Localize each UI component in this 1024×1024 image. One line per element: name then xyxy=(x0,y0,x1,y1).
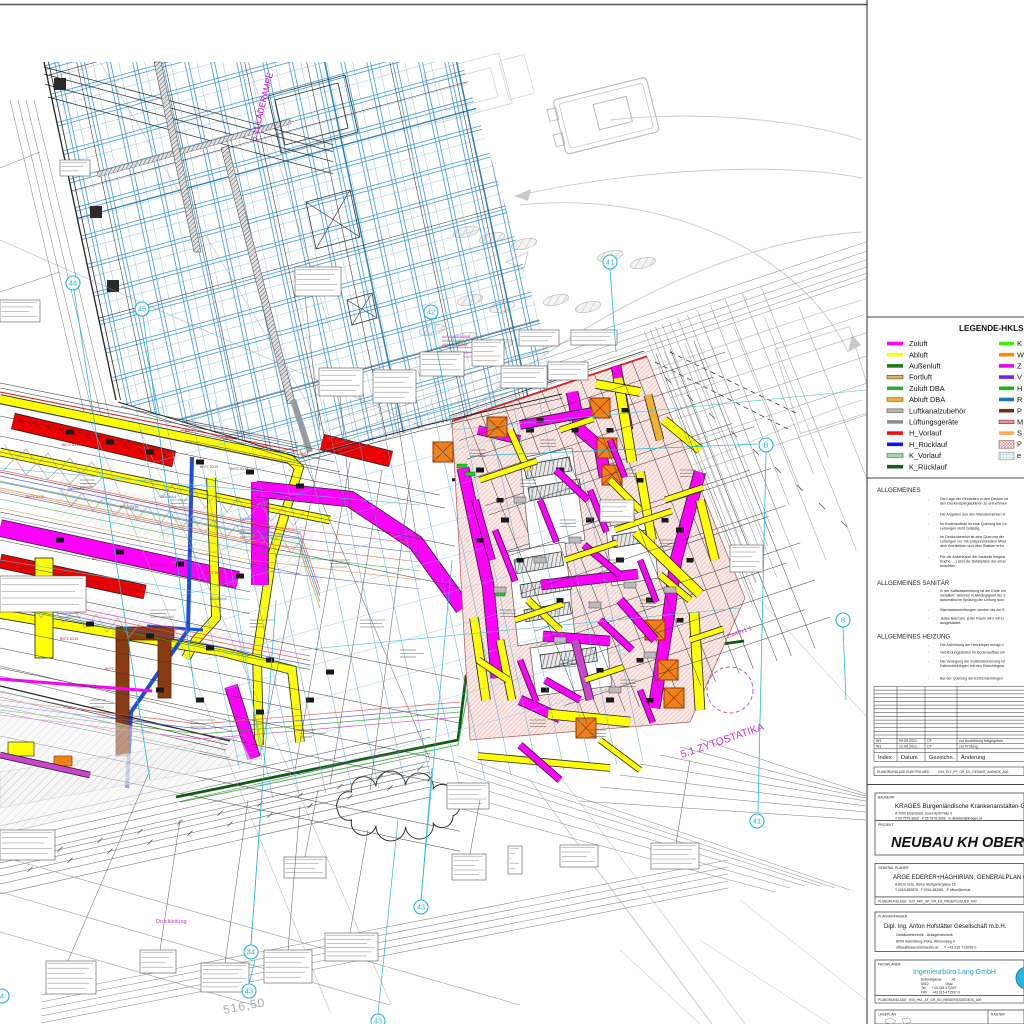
svg-text:Luftkanalzubehör: Luftkanalzubehör xyxy=(909,406,966,415)
svg-text:zur Prüfung: zur Prüfung xyxy=(959,745,978,749)
svg-text:BKFZ 20/15: BKFZ 20/15 xyxy=(62,443,80,447)
svg-text:Im Deckenbereich ist eine Quer: Im Deckenbereich ist eine Querung der xyxy=(940,535,1005,539)
svg-text:41: 41 xyxy=(753,817,761,826)
svg-text:PLANGRUNDLAGE K20_ARC_AP_GR_: PLANGRUNDLAGE K20_ARC_AP_GR_EG_FREIEPLGG… xyxy=(878,899,977,903)
svg-text:beachten.: beachten. xyxy=(940,564,956,568)
svg-text:ALLGEMEINES: ALLGEMEINES xyxy=(877,487,921,494)
svg-text:41: 41 xyxy=(606,258,614,267)
svg-text:K_Vorlauf: K_Vorlauf xyxy=(909,451,942,460)
svg-text:43: 43 xyxy=(245,987,253,996)
svg-text:H_Vorlauf: H_Vorlauf xyxy=(909,429,942,438)
svg-text:Verbindungsstellen im Bodenauf: Verbindungsstellen im Bodenaufbau sin xyxy=(940,651,1005,655)
svg-text:P: P xyxy=(1017,406,1022,415)
svg-text:Zuluft: Zuluft xyxy=(909,339,927,348)
svg-text:H_Rücklauf: H_Rücklauf xyxy=(909,440,948,449)
svg-text:AAAAAAAAAAAA: AAAAAAAAAAAA xyxy=(442,343,468,347)
svg-text:Da108x3,6: Da108x3,6 xyxy=(210,597,227,601)
svg-text:H: H xyxy=(1017,384,1022,393)
svg-text:43: 43 xyxy=(417,903,425,912)
svg-text:GENERAL PLANER: GENERAL PLANER xyxy=(878,866,909,870)
svg-text:BKFZ: BKFZ xyxy=(262,445,270,449)
svg-text:BKFZ: BKFZ xyxy=(185,429,193,433)
svg-text:dem Architekten und dem Statik: dem Architekten und dem Statiker erfor xyxy=(940,544,1005,548)
svg-text:Ingenieurbüro Lang GmbH: Ingenieurbüro Lang GmbH xyxy=(913,969,996,976)
svg-text:BKFZ 20/15: BKFZ 20/15 xyxy=(205,571,223,575)
svg-text:ARGE EDERER+HAGHIRIAN, GENERAL: ARGE EDERER+HAGHIRIAN, GENERALPLAN GMBH xyxy=(893,875,1024,881)
svg-text:Abluft DBA: Abluft DBA xyxy=(909,395,945,404)
svg-text:A-8010 Graz, Reine Stuttgarter: A-8010 Graz, Reine Stuttgartergasse 18 xyxy=(895,883,956,887)
svg-text:installiert, welches in Abhäng: installiert, welches in Abhängigkeit der… xyxy=(940,594,1006,598)
svg-text:43: 43 xyxy=(374,1017,382,1024)
svg-text:zur Ausführung freigegeben: zur Ausführung freigegeben xyxy=(959,739,1003,743)
svg-text:09.09.2021: 09.09.2021 xyxy=(899,739,917,743)
svg-text:ausgestattet.: ausgestattet. xyxy=(940,621,961,625)
svg-text:CF: CF xyxy=(927,745,933,749)
svg-text:Abluft: Abluft xyxy=(909,350,928,359)
svg-text:W: W xyxy=(1017,350,1024,359)
svg-text:Index: Index xyxy=(878,755,892,761)
svg-text:V: V xyxy=(1017,373,1022,382)
svg-text:Datum: Datum xyxy=(901,755,918,761)
svg-text:Warmwasserleitungen werden bis: Warmwasserleitungen werden bis zur E xyxy=(940,608,1005,612)
svg-text:BKFZ: BKFZ xyxy=(225,437,233,441)
svg-text:B: B xyxy=(763,441,768,450)
svg-text:Z: Z xyxy=(1017,362,1022,371)
svg-text:In der Kaltwasserleitung ist a: In der Kaltwasserleitung ist am Ende ein xyxy=(940,589,1006,593)
svg-text:12.08.2021: 12.08.2021 xyxy=(899,745,917,749)
svg-text:Gebäudetechnik - Anlagentechni: Gebäudetechnik - Anlagentechnik xyxy=(896,933,953,937)
svg-text:Leitungen nur mit entsprechend: Leitungen nur mit entsprechendem Mind xyxy=(940,540,1006,544)
svg-text:BKFZ 20/15: BKFZ 20/15 xyxy=(230,467,248,471)
svg-text:8: 8 xyxy=(841,616,845,625)
svg-text:PLANVERFASSER: PLANVERFASSER xyxy=(878,915,908,919)
svg-text:Bei der Querung der Estrichdeh: Bei der Querung der Estrichdehnfugen xyxy=(940,677,1003,681)
svg-text:44: 44 xyxy=(247,948,255,957)
svg-text:45: 45 xyxy=(138,305,146,314)
svg-text:CF: CF xyxy=(927,739,933,743)
svg-text:PLANGRUNDLAGE ELEKTRO-MED: PLANGRUNDLAGE ELEKTRO-MED xyxy=(877,770,930,774)
svg-text:BKFZ 20/15: BKFZ 20/15 xyxy=(92,557,110,561)
svg-text:Dipl. Ing. Anton Hofstätter Ge: Dipl. Ing. Anton Hofstätter Gesellschaft… xyxy=(884,924,1007,930)
svg-text:T 05 7979-3000 F 05 7979-300: T 05 7979-3000 F 05 7979-3006 E direktio… xyxy=(895,816,982,820)
svg-text:Die Lage der Einbauten in den: Die Lage der Einbauten in den Decken ist xyxy=(940,497,1008,501)
svg-text:Änderung: Änderung xyxy=(961,754,985,761)
svg-text:automatische Spülung der Leitu: automatische Spülung der Leitung durc xyxy=(940,598,1004,602)
svg-text:e: e xyxy=(1017,451,1021,460)
svg-text:K_Rücklauf: K_Rücklauf xyxy=(909,462,948,471)
svg-text:RASTER: RASTER xyxy=(991,1013,1005,1017)
svg-text:S: S xyxy=(1017,429,1022,438)
svg-text:T 0316-682576 F 0316-682951: T 0316-682576 F 0316-682951 E office@wm.… xyxy=(895,888,970,892)
svg-text:XXX_ELT_FP_GR_EG_GESAMT_A00WGK: XXX_ELT_FP_GR_EG_GESAMT_A00WGK_A00 xyxy=(938,770,1008,774)
svg-text:Fortluft: Fortluft xyxy=(909,373,932,382)
svg-text:Gezeichn.: Gezeichn. xyxy=(929,755,955,761)
svg-text:Die Anbindung der Heizkörper e: Die Anbindung der Heizkörper erfolgt ü xyxy=(940,643,1004,647)
svg-text:Küche, ...) sind die Detailplä: Küche, ...) sind die Detailpläne der ein… xyxy=(940,560,1006,564)
svg-text:Für die Anschlüsse der bauseit: Für die Anschlüsse der bauseits beigest xyxy=(940,555,1005,559)
svg-text:Die Verlegung der Fußbodenheiz: Die Verlegung der Fußbodenheizung ist xyxy=(940,660,1005,664)
svg-text:LEGENDE-HKLS: LEGENDE-HKLS xyxy=(959,324,1024,333)
svg-text:Druckleitung: Druckleitung xyxy=(156,919,187,925)
svg-text:44: 44 xyxy=(69,279,77,288)
svg-text:ALLGEMEINES SANITÄR: ALLGEMEINES SANITÄR xyxy=(877,580,950,587)
svg-text:42: 42 xyxy=(427,308,435,317)
svg-text:Estrichdehnfugen mit den Estri: Estrichdehnfugen mit den Estrichlegear xyxy=(940,664,1005,668)
svg-text:PROJEKT: PROJEKT xyxy=(878,823,894,827)
svg-text:Die Angaben aus den Wandansich: Die Angaben aus den Wandansichten si xyxy=(940,513,1005,517)
svg-text:PLANGRUNDLAGE K05_HKL_AF_GR_: PLANGRUNDLAGE K05_HKL_AF_GR_EG_RINGERISS… xyxy=(878,998,982,1002)
svg-text:den Deckenspiegelplänen zu ent: den Deckenspiegelplänen zu entnehmen xyxy=(940,502,1007,506)
svg-text:BKFZ 20/15: BKFZ 20/15 xyxy=(150,563,168,567)
svg-text:NEUBAU KH OBERWART: NEUBAU KH OBERWART xyxy=(891,835,1024,851)
svg-text:4: 4 xyxy=(0,992,4,1001)
svg-text:Leitungen nicht zulässig.: Leitungen nicht zulässig. xyxy=(940,527,980,531)
svg-text:R: R xyxy=(1017,395,1022,404)
svg-text:A-7000 Eisenstadt, Josef Hyrtl: A-7000 Eisenstadt, Josef Hyrtl Platz 4 xyxy=(895,812,952,816)
svg-text:LAGEPLAN: LAGEPLAN xyxy=(878,1013,896,1017)
svg-text:M: M xyxy=(1017,418,1023,427)
svg-text:office@haus-hofstaetter.at: office@haus-hofstaetter.at T +43 316 713… xyxy=(896,946,976,950)
svg-text:P: P xyxy=(1017,439,1022,448)
svg-text:Lüftungsgeräte: Lüftungsgeräte xyxy=(909,418,958,427)
svg-text:Im Bodenaufbau ist eine Querun: Im Bodenaufbau ist eine Querung der Le xyxy=(940,522,1007,526)
svg-text:Zuluft DBA: Zuluft DBA xyxy=(909,384,945,393)
svg-text:KRAGES Burgenländische Kranken: KRAGES Burgenländische Krankenanstalten-… xyxy=(895,803,1024,810)
svg-text:W1: W1 xyxy=(876,739,881,743)
svg-text:Außenluft: Außenluft xyxy=(909,362,941,371)
svg-text:Jedes Bad bzw. jeder Raum wird: Jedes Bad bzw. jeder Raum wird mit ei xyxy=(940,617,1004,621)
svg-text:FACHPLANER: FACHPLANER xyxy=(878,963,901,967)
svg-text:ALLGEMEINES HEIZUNG: ALLGEMEINES HEIZUNG xyxy=(877,634,950,641)
svg-text:8054 Seiersberg-Pirka, Wienerw: 8054 Seiersberg-Pirka, Wienerweg 9 xyxy=(896,940,955,944)
svg-text:K: K xyxy=(1017,339,1022,348)
svg-text:BAUHERR: BAUHERR xyxy=(878,796,895,800)
svg-text:W1: W1 xyxy=(876,745,881,749)
svg-text:BKFZ 20/15: BKFZ 20/15 xyxy=(60,637,78,641)
